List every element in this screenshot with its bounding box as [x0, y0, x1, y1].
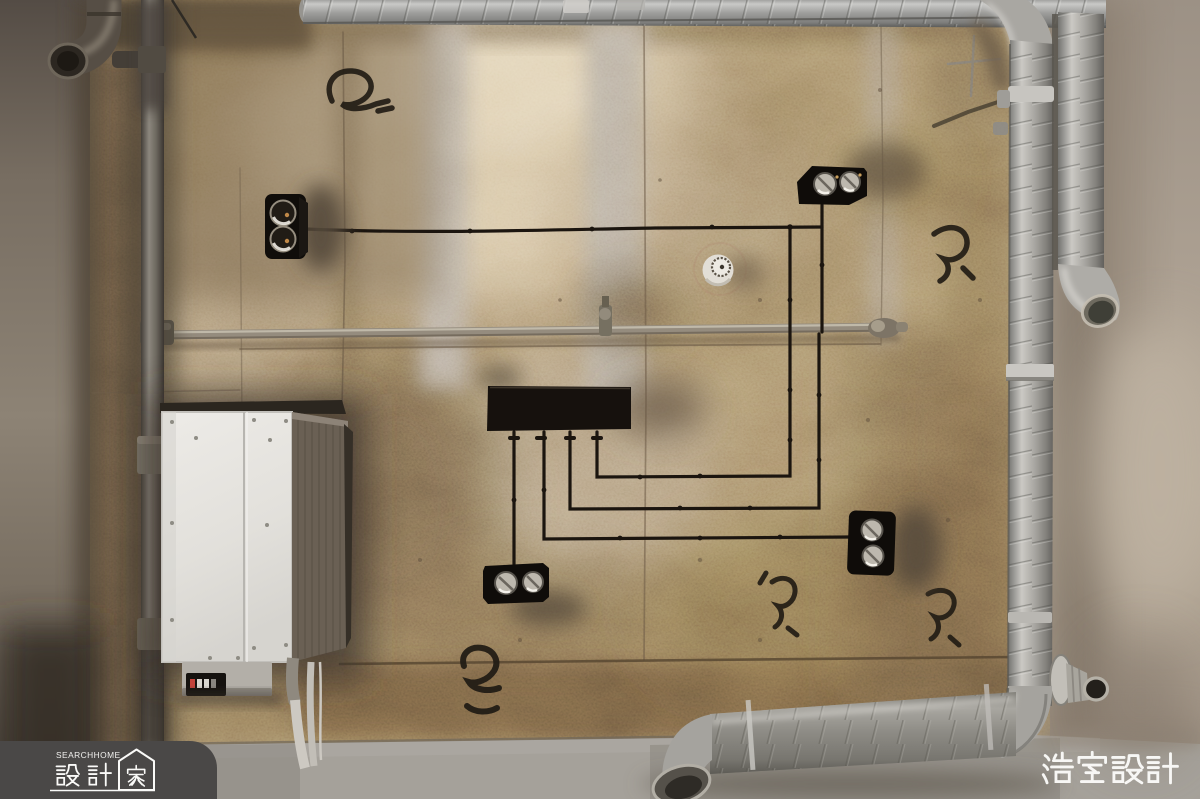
svg-text:SEARCHHOME: SEARCHHOME: [56, 750, 121, 760]
